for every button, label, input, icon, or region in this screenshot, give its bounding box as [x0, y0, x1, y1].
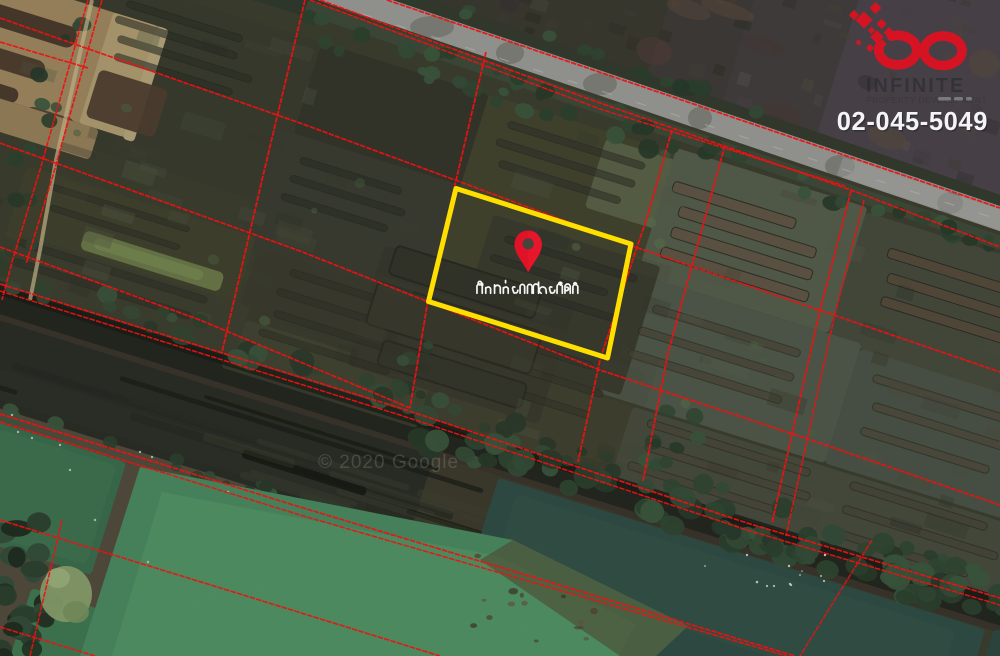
svg-text:© 2020 Google: © 2020 Google	[318, 452, 459, 473]
svg-text:INFINITE: INFINITE	[866, 75, 965, 97]
svg-text:02-045-5049: 02-045-5049	[837, 108, 988, 136]
